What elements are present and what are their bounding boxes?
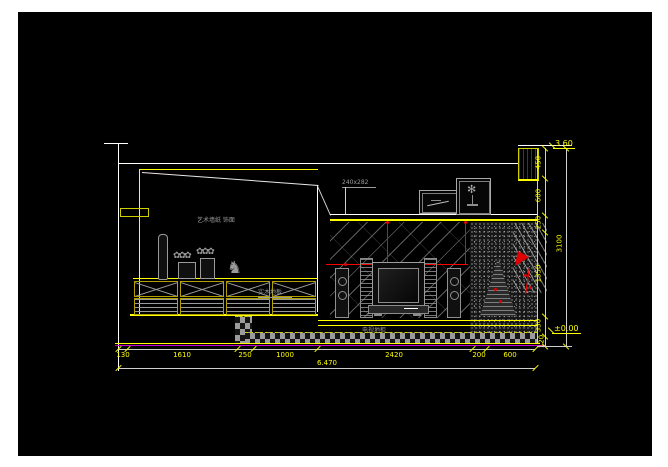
dim-right-1350: 1350 [535,263,544,285]
louver-panel [180,298,224,315]
dim-right-250: 250 [535,212,544,234]
tv-buttons [404,308,418,309]
floor-finish-label: 实木地板 [258,289,292,298]
dim-right-600: 600 [535,185,544,207]
tv-foot [413,313,421,316]
shelf-line [330,214,537,215]
picture-art [422,193,458,213]
red-marker [386,221,389,224]
dim-bottom-2420: 2420 [377,351,411,359]
cabinet-top-line [318,320,537,321]
red-layout-line-v [387,222,388,264]
left-wall-right-edge [317,185,318,312]
floor-accent-line [115,345,545,346]
red-branch-bud [529,286,532,289]
dim-bottom-1000: 1000 [268,351,302,359]
left-wall-top [139,169,318,170]
picture-size-leader [345,187,346,214]
dim-bottom-250: 250 [228,351,262,359]
elevation-floor: ±0.00 [552,324,581,334]
shelf-rail [330,219,537,221]
left-extension-cap [104,143,128,144]
dim-bottom-total: 6.470 [310,359,344,367]
decor-flower [494,288,497,291]
picture-size-label: 240x282 [342,179,376,188]
dim-bottom-600: 600 [493,351,527,359]
floor-line [115,343,540,344]
plant-pot: ✿✿✿ [196,248,213,257]
red-branch-bud [524,274,527,277]
x-panel [134,281,178,297]
louver-panel [134,298,178,315]
vase-figure [158,234,168,280]
dim-bottom-1610: 1610 [165,351,199,359]
wall-finish-label: 艺术墙纸 饰面 [197,217,235,224]
wall-sconce [120,208,149,217]
horse-figurine: ♞ [227,260,242,277]
right-total-line [566,148,567,346]
speaker-left [335,268,349,318]
picture-frame [419,190,459,214]
louver-panel [226,298,270,315]
dim-right-450: 450 [535,152,544,174]
red-marker [344,263,347,266]
plant-pot: ✿✿✿ [173,252,190,261]
cad-elevation-drawing: 艺术墙纸 饰面 ✿✿✿ ✿✿✿ ♞ 240x282 ✻ [0,0,668,467]
speaker-right [447,268,461,318]
dim-right-total: 3100 [556,233,565,255]
tv-foot [374,313,382,316]
plant-pot-base [200,258,215,279]
x-panel [180,281,224,297]
ceiling-line [118,163,520,164]
red-marker [464,221,467,224]
cabinet-front-line [318,325,537,326]
picture-frame: ✻ [456,178,491,215]
elevation-top: 3.60 [553,139,575,149]
dim-bottom-130: 130 [106,351,140,359]
louver-panel [272,298,316,315]
picture-art: ✻ [459,181,490,214]
dim-bottom-200: 200 [462,351,496,359]
left-extension-line [118,143,119,371]
floor-extension-line [537,346,572,347]
red-layout-line-v [465,222,466,264]
tv-screen [378,268,419,303]
plant-pot-base [178,262,196,279]
dim-right-120: 120 [538,331,547,353]
decor-flower [499,300,502,303]
bottom-total-line [118,368,535,369]
